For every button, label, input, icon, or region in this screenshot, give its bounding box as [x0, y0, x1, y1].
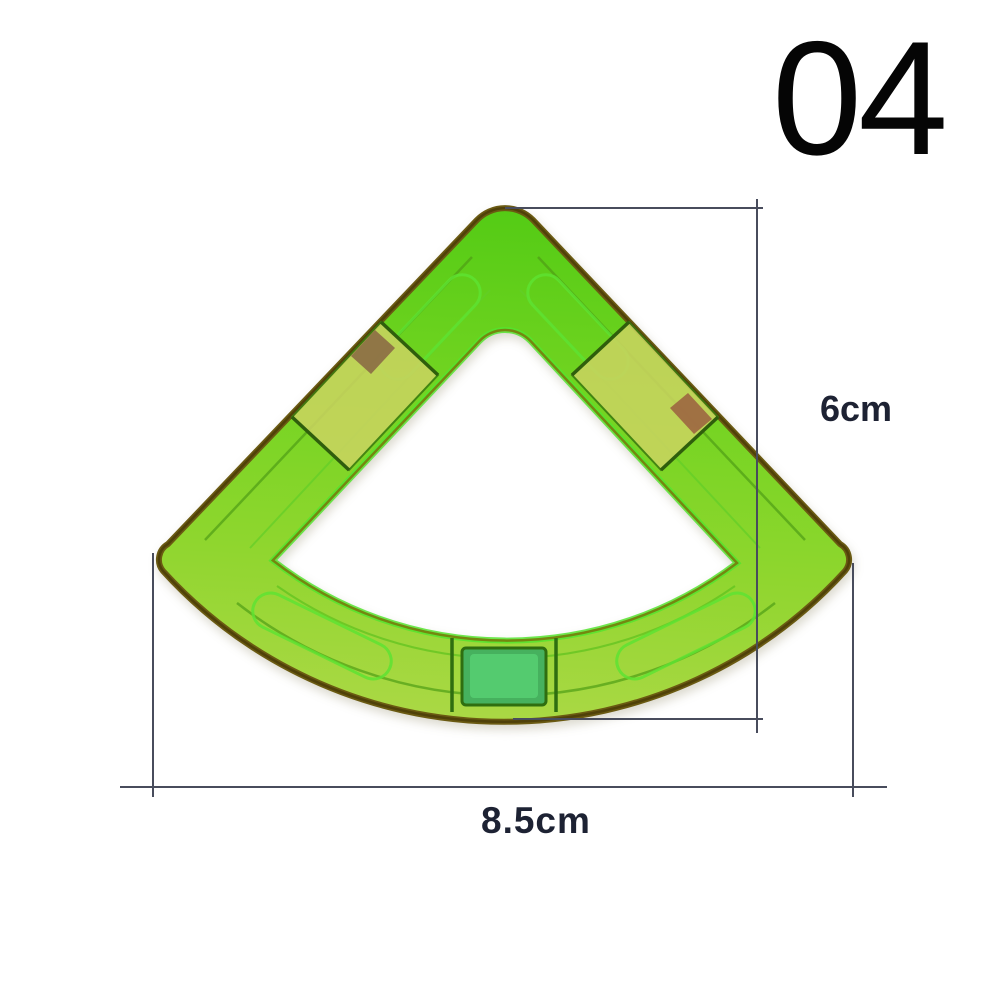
height-dimension-label: 6cm — [820, 391, 892, 427]
width-dimension-label: 8.5cm — [481, 802, 591, 839]
product-image: 04 6cm 8.5cm — [0, 0, 1002, 1002]
item-number: 04 — [772, 18, 944, 180]
